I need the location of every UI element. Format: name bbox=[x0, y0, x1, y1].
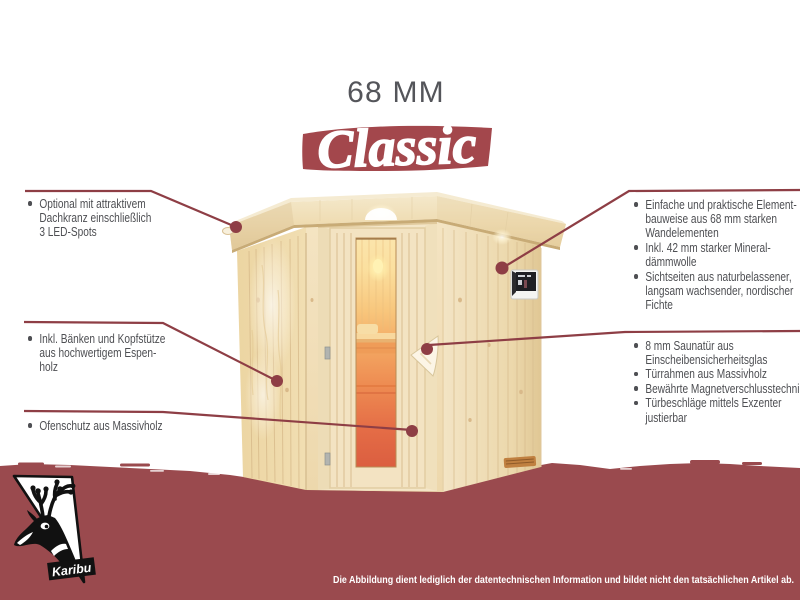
svg-text:Classic: Classic bbox=[316, 114, 477, 180]
